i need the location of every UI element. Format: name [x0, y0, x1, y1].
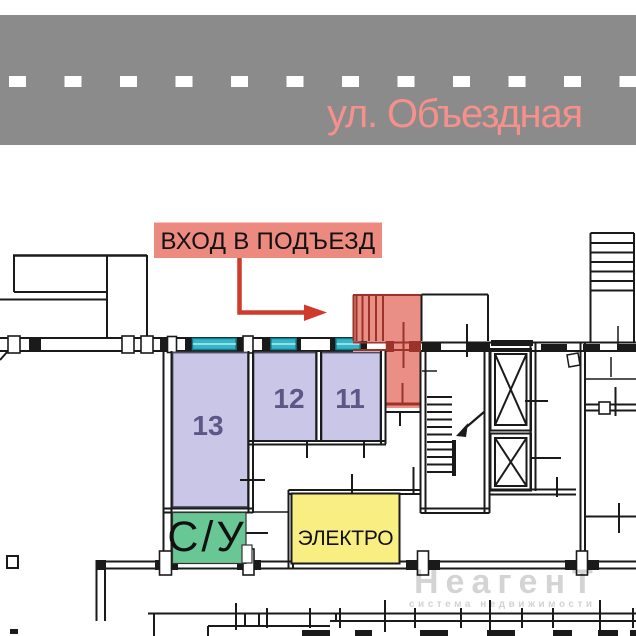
svg-text:11: 11 [335, 383, 365, 414]
svg-text:12: 12 [273, 383, 304, 414]
svg-text:НеагенТ: НеагенТ [414, 563, 600, 601]
svg-text:ВХОД В ПОДЪЕЗД: ВХОД В ПОДЪЕЗД [161, 228, 376, 255]
svg-text:ул. Объездная: ул. Объездная [327, 92, 582, 136]
svg-text:ЭЛЕКТРО: ЭЛЕКТРО [298, 527, 394, 550]
svg-text:система недвижимости: система недвижимости [409, 599, 596, 610]
svg-text:13: 13 [192, 410, 223, 441]
svg-text:С/У: С/У [167, 513, 246, 561]
